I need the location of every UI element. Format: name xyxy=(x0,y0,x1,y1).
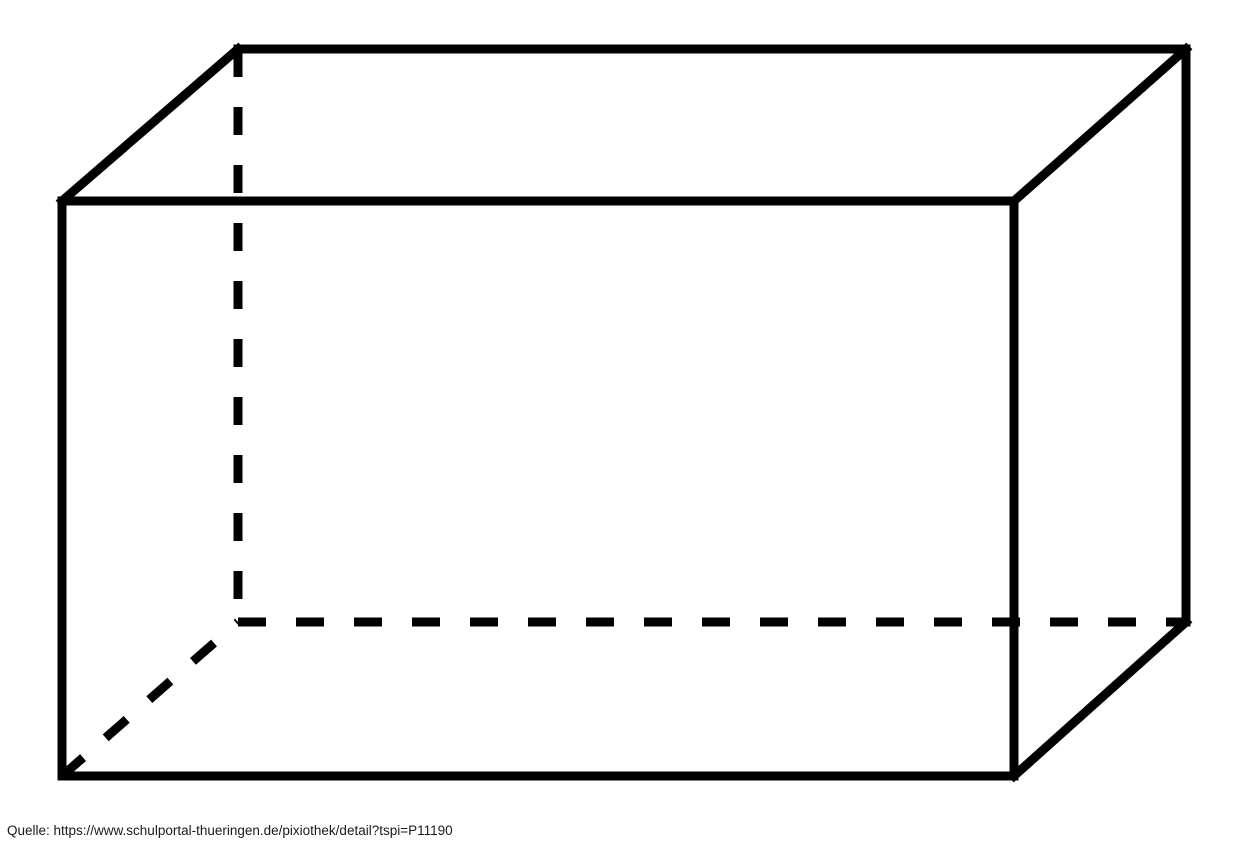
cuboid-wireframe-diagram xyxy=(0,0,1250,845)
cuboid-edge-front_bottom_right--back_bottom_right xyxy=(1014,622,1186,776)
page: Quelle: https://www.schulportal-thuering… xyxy=(0,0,1250,845)
source-caption: Quelle: https://www.schulportal-thuering… xyxy=(7,822,453,839)
cuboid-edge-front_bottom_left--back_bottom_left-hidden xyxy=(62,622,238,776)
cuboid-edge-front_top_left--back_top_left xyxy=(62,49,238,201)
cuboid-edge-front_top_right--back_top_right xyxy=(1014,49,1186,201)
